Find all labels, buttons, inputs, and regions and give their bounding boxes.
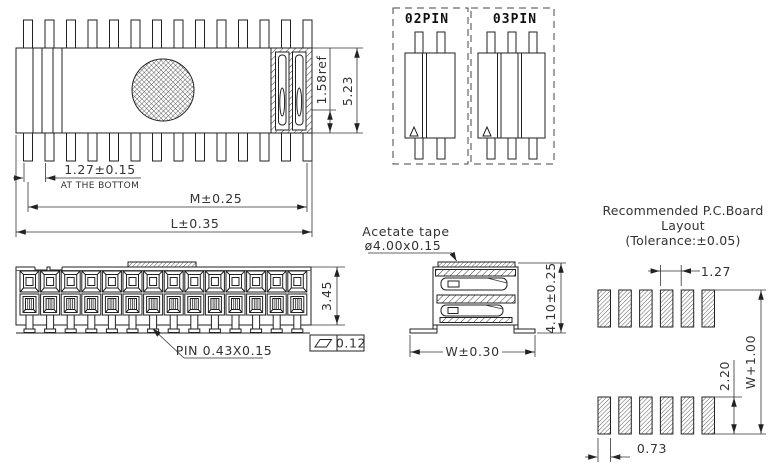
dim-pad-length-label: 2.20 <box>717 361 732 391</box>
dim-pad-width-label: 0.73 <box>637 441 667 456</box>
dim-m-label: M±0.25 <box>190 191 243 206</box>
dim-pad-length: 2.20 <box>715 360 767 434</box>
pcb-title-1: Recommended P.C.Board <box>602 203 763 218</box>
front-view: 3.45 PIN 0.43X0.15 0.12 <box>16 262 366 358</box>
right-foot <box>514 329 535 333</box>
dim-pitch-label: 1.27±0.15 <box>64 162 136 177</box>
tape-label-1: Acetate tape <box>362 224 449 239</box>
variant-03pin-label: 03PIN <box>493 12 537 27</box>
dim-3-45: 3.45 <box>311 267 345 325</box>
variant-03pin-body <box>478 32 545 159</box>
pcb-layout: Recommended P.C.Board Layout (Tolerance:… <box>585 203 766 462</box>
dim-ref-label: 1.58ref <box>314 56 329 105</box>
top-view-section <box>271 48 312 133</box>
dim-pad-width: 0.73 <box>585 438 667 462</box>
variant-02pin-body <box>405 32 455 159</box>
flatness-value: 0.12 <box>336 336 366 351</box>
left-foot <box>410 329 437 333</box>
dim-pitch: 1.27±0.15 AT THE BOTTOM <box>13 162 141 191</box>
flatness-frame: 0.12 <box>310 335 366 351</box>
crosshatched-circle <box>132 59 194 121</box>
engineering-drawing-page: 1.58ref 5.23 1.27±0.15 AT THE BOTTOM M±0… <box>0 0 768 465</box>
drawing-canvas: 1.58ref 5.23 1.27±0.15 AT THE BOTTOM M±0… <box>0 0 768 465</box>
top-view: 1.58ref 5.23 1.27±0.15 AT THE BOTTOM M±0… <box>13 20 363 237</box>
dim-overall-label: W+1.00 <box>743 335 758 389</box>
pcb-title-3: (Tolerance:±0.05) <box>625 233 740 248</box>
dim-pcb-pitch: 1.27 <box>648 264 731 286</box>
tape-label-2: ø4.00x0.15 <box>365 238 442 253</box>
dim-pcb-pitch-label: 1.27 <box>701 264 731 279</box>
dim-w: W±0.30 <box>410 335 535 359</box>
dim-1-58ref: 1.58ref <box>312 48 363 133</box>
dim-side-height: 4.10±0.25 <box>518 262 566 334</box>
dim-l-label: L±0.35 <box>171 216 220 231</box>
pin-callout-label: PIN 0.43X0.15 <box>176 343 273 358</box>
side-view: Acetate tape ø4.00x0.15 W±0.30 4.10±0.25 <box>362 224 566 359</box>
dim-w-label: W±0.30 <box>445 344 499 359</box>
pcb-title-2: Layout <box>661 218 705 233</box>
dim-front-height-label: 3.45 <box>319 281 334 311</box>
dim-5-23: 5.23 <box>340 48 357 133</box>
dim-pitch-note: AT THE BOTTOM <box>61 181 140 191</box>
variant-02pin-label: 02PIN <box>405 12 449 27</box>
tape-callout: Acetate tape ø4.00x0.15 <box>362 224 456 261</box>
dim-height-label: 5.23 <box>340 76 355 106</box>
dim-side-height-label: 4.10±0.25 <box>543 262 558 334</box>
variant-views: 02PIN 03PIN <box>393 8 554 164</box>
